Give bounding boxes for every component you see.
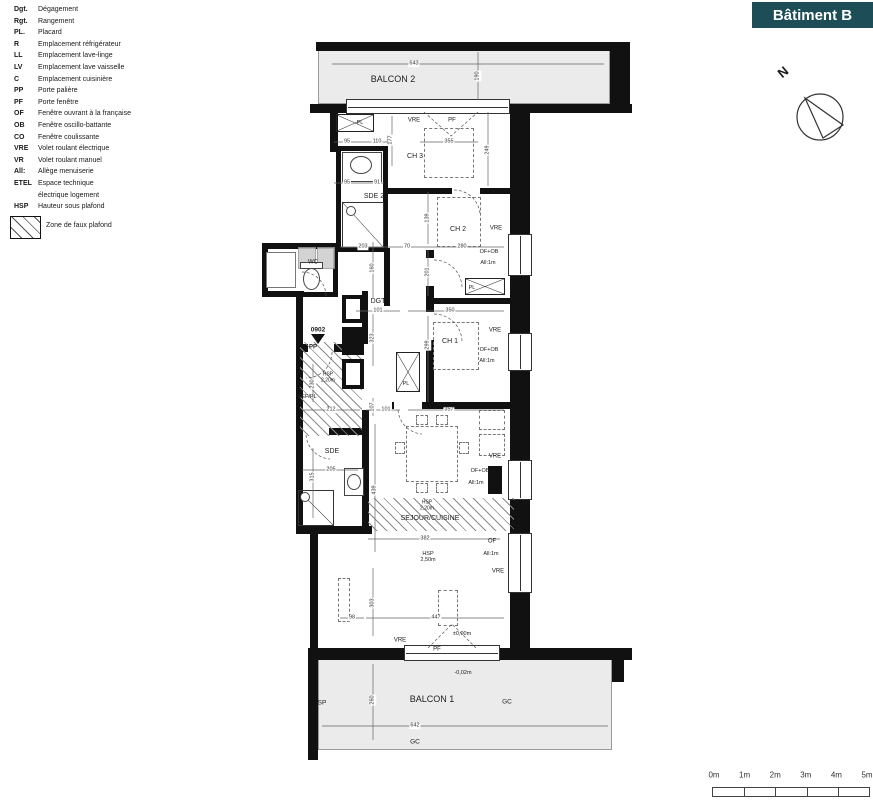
- dimension-label: 382: [419, 536, 430, 542]
- room-or-annotation-label: SDE: [325, 448, 339, 456]
- legend-description: Emplacement lave-linge: [38, 50, 113, 62]
- room-or-annotation-label: PL: [357, 120, 364, 126]
- dimension-label: 260: [370, 694, 376, 705]
- bed-ch1: [433, 322, 479, 370]
- legend-abbr: CO: [14, 132, 38, 144]
- scale-tick: [744, 788, 745, 796]
- legend-abbr: C: [14, 74, 38, 86]
- dimension-label: 95: [343, 139, 351, 145]
- room-or-annotation-label: OF+OB: [480, 347, 499, 353]
- room-or-annotation-label: GC: [502, 698, 512, 705]
- window-balcony2: [346, 99, 510, 114]
- legend-abbr: OF: [14, 108, 38, 120]
- door-gap: [394, 402, 422, 409]
- legend-abbr: Dgt.: [14, 4, 38, 16]
- scale-label: 0m: [708, 771, 719, 780]
- kitchen-appliance: [479, 410, 505, 430]
- sde2-shower-drain: [346, 206, 356, 216]
- dimension-label: 439: [372, 484, 378, 495]
- scale-bar: [712, 787, 870, 797]
- legend-description: Porte palière: [38, 85, 78, 97]
- room-or-annotation-label: PL: [469, 285, 476, 291]
- wall: [610, 42, 630, 112]
- legend-item: COFenêtre coulissante: [14, 132, 234, 144]
- legend: Dgt.DégagementRgt.RangementPL.PlacardREm…: [14, 4, 234, 213]
- room-or-annotation-label: SDE 2: [364, 193, 384, 201]
- room-or-annotation-label: OF+OB: [480, 249, 499, 255]
- legend-item: HSPHauteur sous plafond: [14, 201, 234, 213]
- dimension-label: 203: [357, 244, 368, 250]
- dimension-label: 201: [425, 266, 431, 277]
- legend-description: Hauteur sous plafond: [38, 201, 105, 213]
- legend-abbr: PF: [14, 97, 38, 109]
- door-gap: [452, 188, 480, 194]
- window-sejour-1: [508, 460, 532, 500]
- room-or-annotation-label: ±0,00m: [453, 631, 471, 637]
- room-or-annotation-label: All:1m: [483, 551, 498, 557]
- legend-description: Emplacement réfrigérateur: [38, 39, 121, 51]
- wall: [316, 42, 630, 51]
- wc-niche: [266, 252, 296, 288]
- chair: [416, 415, 428, 425]
- dimension-label: 110: [372, 139, 383, 145]
- legend-description: Volet roulant manuel: [38, 155, 102, 167]
- legend-description: Porte fenêtre: [38, 97, 78, 109]
- legend-item: OBFenêtre oscillo-battante: [14, 120, 234, 132]
- dimension-label: 280: [456, 244, 467, 250]
- room-or-annotation-label: REF/PL: [297, 394, 316, 400]
- legend-description: Fenêtre ouvrant à la française: [38, 108, 131, 120]
- chair: [436, 483, 448, 493]
- legend-item: PL.Placard: [14, 27, 234, 39]
- legend-abbr: ETEL: [14, 178, 38, 201]
- room-or-annotation-label: GC: [410, 738, 420, 745]
- room-or-annotation-label: CH 1: [442, 338, 458, 346]
- legend-item: PFPorte fenêtre: [14, 97, 234, 109]
- legend-item: VREVolet roulant électrique: [14, 143, 234, 155]
- north-letter: N: [775, 63, 792, 81]
- wall: [308, 648, 318, 760]
- room-or-annotation-label: DGT: [371, 298, 386, 306]
- legend-description: Espace technique électrique logement: [38, 178, 99, 201]
- wall: [310, 532, 318, 660]
- wall: [386, 188, 512, 194]
- scale-tick: [807, 788, 808, 796]
- legend-description: Placard: [38, 27, 62, 39]
- window-balcony1: [404, 645, 500, 661]
- dimension-label: 315: [310, 471, 316, 482]
- room-or-annotation-label: PF: [433, 647, 441, 654]
- room-or-annotation-label: VRE: [394, 638, 406, 645]
- chair: [395, 442, 405, 454]
- legend-item: CEmplacement cuisinière: [14, 74, 234, 86]
- room-or-annotation-label: HSP 2,20m: [321, 373, 335, 384]
- etel-box: [488, 466, 502, 494]
- faux-plafond-hatch-swatch: [10, 216, 41, 239]
- room-or-annotation-label: CH 3: [407, 153, 423, 161]
- scale-tick: [775, 788, 776, 796]
- room-or-annotation-label: BALCON 1: [410, 695, 455, 705]
- scale-label: 5m: [861, 771, 872, 780]
- room-or-annotation-label: BALCON 2: [371, 75, 416, 85]
- dimension-label: 139: [425, 212, 431, 223]
- bed-ch2: [437, 197, 481, 247]
- window-ch2: [508, 234, 532, 276]
- dimension-label: 95: [343, 180, 351, 186]
- room-or-annotation-label: HSP 2,20m: [420, 501, 434, 512]
- legend-description: Emplacement cuisinière: [38, 74, 112, 86]
- room-or-annotation-label: All:1m: [468, 480, 483, 486]
- dimension-label: 107: [370, 401, 376, 412]
- sde-sink-bowl: [347, 474, 361, 490]
- window-sejour-2: [508, 533, 532, 593]
- legend-abbr: LL: [14, 50, 38, 62]
- shaft-box: [342, 359, 364, 389]
- legend-item: REmplacement réfrigérateur: [14, 39, 234, 51]
- wall: [432, 298, 512, 304]
- balcony-2-area: [318, 50, 610, 104]
- legend-description: Emplacement lave vaisselle: [38, 62, 124, 74]
- entrance-arrow-icon: [311, 334, 325, 344]
- dimension-label: 643: [408, 61, 419, 67]
- room-or-annotation-label: OF: [488, 539, 496, 546]
- scale-label: 1m: [739, 771, 750, 780]
- room-or-annotation-label: VRE: [489, 328, 501, 335]
- legend-description: Dégagement: [38, 4, 78, 16]
- chair: [459, 442, 469, 454]
- building-label: Bâtiment B: [752, 2, 873, 28]
- room-or-annotation-label: All:1m: [479, 358, 494, 364]
- window-ch1: [508, 333, 532, 371]
- room-or-annotation-label: WC: [308, 260, 318, 267]
- room-or-annotation-label: VRE: [489, 454, 501, 461]
- dimension-label: 299: [425, 339, 431, 350]
- legend-item: Dgt.Dégagement: [14, 4, 234, 16]
- legend-description: Volet roulant électrique: [38, 143, 109, 155]
- room-or-annotation-label: PF: [448, 118, 456, 125]
- room-or-annotation-label: SP: [318, 699, 327, 706]
- sde-shower-drain: [300, 492, 310, 502]
- legend-item: LVEmplacement lave vaisselle: [14, 62, 234, 74]
- dimension-label: 323: [370, 332, 376, 343]
- dimension-label: 160: [370, 262, 376, 273]
- room-or-annotation-label: HSP 2,50m: [420, 551, 435, 563]
- closet-pl-ch3: [336, 114, 374, 132]
- dimension-label: 357: [443, 407, 454, 413]
- scale-label: 4m: [831, 771, 842, 780]
- legend-abbr: VR: [14, 155, 38, 167]
- legend-abbr: All:: [14, 166, 38, 178]
- scale-label: 3m: [800, 771, 811, 780]
- dimension-label: 101: [372, 308, 383, 314]
- sde2-sink-bowl: [350, 156, 372, 174]
- room-or-annotation-label: 0902: [311, 326, 325, 333]
- legend-item: ETELEspace technique électrique logement: [14, 178, 234, 201]
- kitchen-appliance: [479, 434, 505, 456]
- dining-table: [406, 426, 458, 482]
- scale-label: 2m: [770, 771, 781, 780]
- legend-abbr: R: [14, 39, 38, 51]
- room-or-annotation-label: All:1m: [480, 260, 495, 266]
- dimension-label: 98: [348, 615, 356, 621]
- room-or-annotation-label: VRE: [408, 118, 420, 125]
- dimension-label: 230: [310, 378, 316, 389]
- legend-item: LLEmplacement lave-linge: [14, 50, 234, 62]
- legend-abbr: LV: [14, 62, 38, 74]
- legend-item: OFFenêtre ouvrant à la française: [14, 108, 234, 120]
- shaft-box: [342, 295, 364, 323]
- faux-plafond-label: Zone de faux plafond: [46, 222, 112, 229]
- room-or-annotation-label: PL: [403, 381, 410, 387]
- legend-description: Fenêtre coulissante: [38, 132, 99, 144]
- dimension-label: 70: [403, 244, 411, 250]
- dimension-label: 350: [444, 308, 455, 314]
- legend-item: VRVolet roulant manuel: [14, 155, 234, 167]
- dimension-label: 355: [443, 139, 454, 145]
- room-or-annotation-label: -0,02m: [454, 670, 471, 676]
- toilet-bowl: [303, 268, 320, 290]
- room-or-annotation-label: PP: [309, 345, 317, 352]
- compass-icon: [797, 94, 843, 140]
- dimension-label: 190: [475, 70, 481, 81]
- dimension-label: 642: [409, 723, 420, 729]
- dimension-label: 205: [325, 467, 336, 473]
- legend-abbr: Rgt.: [14, 16, 38, 28]
- legend-item: All:Allège menuiserie: [14, 166, 234, 178]
- room-or-annotation-label: OF+OB: [471, 468, 490, 474]
- dimension-label: 101: [380, 407, 391, 413]
- legend-item: Rgt.Rangement: [14, 16, 234, 28]
- wall: [612, 648, 624, 682]
- room-or-annotation-label: VRE: [492, 569, 504, 576]
- chair: [436, 415, 448, 425]
- dimension-label: 447: [430, 615, 441, 621]
- room-or-annotation-label: CH 2: [450, 226, 466, 234]
- legend-abbr: PP: [14, 85, 38, 97]
- room-or-annotation-label: SEJOUR/CUISINE: [401, 515, 460, 523]
- chair: [416, 483, 428, 493]
- legend-abbr: OB: [14, 120, 38, 132]
- legend-item: PPPorte palière: [14, 85, 234, 97]
- dimension-label: 249: [485, 144, 491, 155]
- scale-tick: [838, 788, 839, 796]
- legend-description: Allège menuiserie: [38, 166, 94, 178]
- dimension-label: 303: [370, 597, 376, 608]
- shaft-box-solid: [342, 327, 364, 355]
- legend-description: Fenêtre oscillo-battante: [38, 120, 111, 132]
- floor-plan-page: { "legend": { "items": [ {"abbr":"Dgt.",…: [0, 0, 873, 800]
- dimension-label: 177: [388, 134, 394, 145]
- wall: [296, 526, 372, 534]
- dimension-label: 91: [373, 180, 381, 186]
- legend-abbr: VRE: [14, 143, 38, 155]
- dimension-label: 212: [325, 407, 336, 413]
- room-or-annotation-label: VRE: [490, 226, 502, 233]
- legend-description: Rangement: [38, 16, 74, 28]
- bed-ch3: [424, 128, 474, 178]
- legend-abbr: PL.: [14, 27, 38, 39]
- legend-abbr: HSP: [14, 201, 38, 213]
